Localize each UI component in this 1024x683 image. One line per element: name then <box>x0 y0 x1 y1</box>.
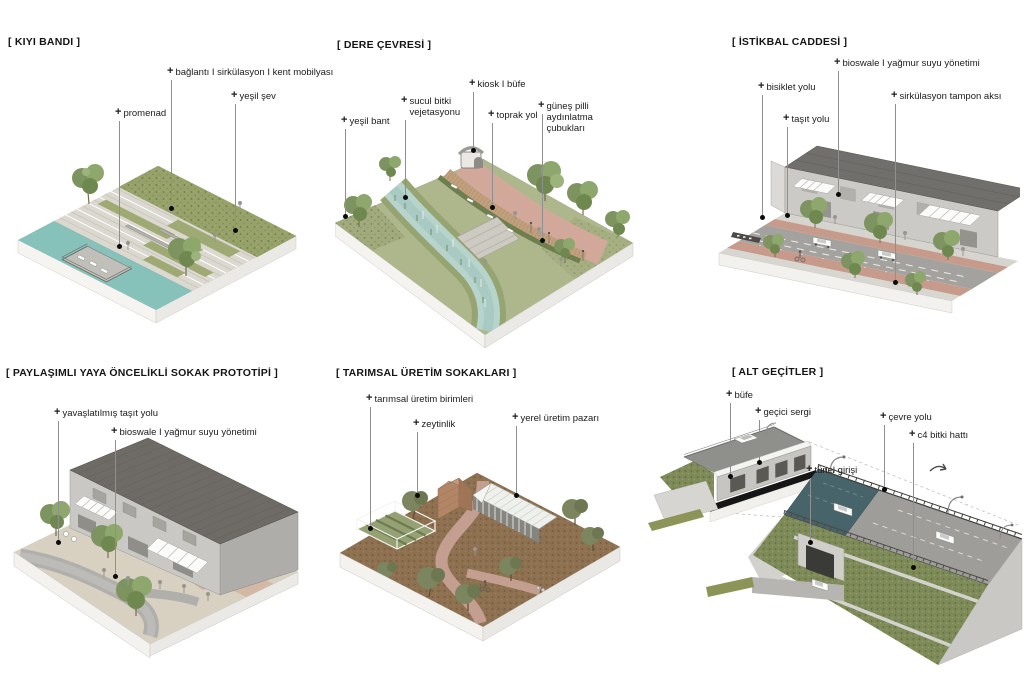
leader-line <box>171 80 172 209</box>
leader-line <box>884 425 885 490</box>
annotation-label: + promenad <box>115 108 166 119</box>
panel-title-kiyi-bandi: [ KIYI BANDI ] <box>8 36 80 48</box>
annotation-text: yerel üretim pazarı <box>520 413 599 424</box>
annotation-label: + bioswale I yağmur suyu yönetimi <box>834 58 980 69</box>
plus-marker: + <box>512 412 518 423</box>
annotation-dot <box>836 192 841 197</box>
annotation-dot <box>757 460 762 465</box>
plus-marker: + <box>783 113 789 124</box>
annotation-text: geçici sergi <box>763 407 811 418</box>
annotation-label: + zeytinlik <box>413 419 455 430</box>
annotation-dot <box>785 213 790 218</box>
annotation-dot <box>56 540 61 545</box>
annotation-dot <box>882 487 887 492</box>
annotation-label: + yeşil şev <box>231 91 276 102</box>
annotation-dot <box>113 574 118 579</box>
illustration-tarimsal-uretim <box>335 445 645 670</box>
leader-line <box>762 95 763 218</box>
annotation-text: bağlantı I sirkülasyon I kent mobilyası <box>175 67 333 78</box>
annotation-text: tarımsal üretim birimleri <box>374 394 473 405</box>
plus-marker: + <box>891 90 897 101</box>
annotation-text: toprak yol <box>496 110 537 121</box>
annotation-dot <box>808 540 813 545</box>
leader-line <box>516 426 517 496</box>
annotation-label: + kiosk I büfe <box>469 79 526 90</box>
leader-line <box>730 403 731 477</box>
illustration-paylasimli-sokak <box>8 430 318 675</box>
annotation-dot <box>403 195 408 200</box>
panel-title-paylasimli-sokak: [ PAYLAŞIMLI YAYA ÖNCELİKLİ SOKAK PROTOT… <box>6 367 278 379</box>
leader-line <box>787 127 788 216</box>
annotation-text: sucul bitki vejetasyonu <box>409 96 460 118</box>
plus-marker: + <box>909 429 915 440</box>
plus-marker: + <box>111 426 117 437</box>
annotation-dot <box>169 206 174 211</box>
annotation-label: + yeşil bant <box>341 116 390 127</box>
annotation-label: + bağlantı I sirkülasyon I kent mobilyas… <box>167 67 333 78</box>
leader-line <box>759 420 760 463</box>
annotation-label: + sirkülasyon tampon aksı <box>891 91 1001 102</box>
annotation-text: tünel girişi <box>814 465 857 476</box>
leader-line <box>405 120 406 198</box>
plus-marker: + <box>469 78 475 89</box>
plus-marker: + <box>880 411 886 422</box>
annotation-label: + yavaşlatılmış taşıt yolu <box>54 408 158 419</box>
leader-line <box>370 407 371 529</box>
illustration-kiyi-bandi <box>8 148 308 348</box>
annotation-text: bisiklet yolu <box>766 82 815 93</box>
plus-marker: + <box>488 109 494 120</box>
plus-marker: + <box>755 406 761 417</box>
annotation-label: + c4 bitki hattı <box>909 430 968 441</box>
plus-marker: + <box>366 393 372 404</box>
annotation-label: + sucul bitki vejetasyonu <box>401 96 457 118</box>
plus-marker: + <box>231 90 237 101</box>
annotation-text: c4 bitki hattı <box>917 430 968 441</box>
annotation-text: bioswale I yağmur suyu yönetimi <box>119 427 256 438</box>
annotation-text: yeşil şev <box>239 91 275 102</box>
annotation-text: promenad <box>123 108 166 119</box>
leader-line <box>235 104 236 231</box>
illustration-dere-cevresi <box>335 145 645 355</box>
plus-marker: + <box>726 389 732 400</box>
plus-marker: + <box>54 407 60 418</box>
leader-line <box>119 121 120 247</box>
leader-line <box>58 421 59 543</box>
annotation-label: + tünel girişi <box>806 465 857 476</box>
annotation-dot <box>471 148 476 153</box>
leader-line <box>417 432 418 496</box>
annotation-label: + yerel üretim pazarı <box>512 413 599 424</box>
plus-marker: + <box>758 81 764 92</box>
leader-line <box>492 123 493 208</box>
annotation-label: + geçici sergi <box>755 407 811 418</box>
plus-marker: + <box>538 100 544 111</box>
annotation-label: + bioswale I yağmur suyu yönetimi <box>111 427 257 438</box>
panel-title-alt-gecitler: [ ALT GEÇİTLER ] <box>732 366 823 378</box>
annotation-label: + güneş pilli aydınlatma çubukları <box>538 101 598 135</box>
annotation-dot <box>368 526 373 531</box>
annotation-dot <box>233 228 238 233</box>
annotation-text: sirkülasyon tampon aksı <box>899 91 1001 102</box>
leader-line <box>838 71 839 195</box>
panel-title-istikbal-caddesi: [ İSTİKBAL CADDESİ ] <box>732 36 847 48</box>
annotation-label: + çevre yolu <box>880 412 932 423</box>
annotation-text: yeşil bant <box>349 116 389 127</box>
annotation-text: güneş pilli aydınlatma çubukları <box>546 101 598 135</box>
diagram-canvas: [ KIYI BANDI ] <box>0 0 1024 683</box>
annotation-dot <box>760 215 765 220</box>
annotation-label: + toprak yol <box>488 110 538 121</box>
leader-line <box>115 440 116 577</box>
annotation-label: + taşıt yolu <box>783 114 829 125</box>
annotation-dot <box>911 565 916 570</box>
annotation-text: bioswale I yağmur suyu yönetimi <box>842 58 979 69</box>
annotation-dot <box>540 238 545 243</box>
plus-marker: + <box>806 464 812 475</box>
plus-marker: + <box>341 115 347 126</box>
leader-line <box>913 443 914 568</box>
annotation-label: + büfe <box>726 390 753 401</box>
annotation-dot <box>490 205 495 210</box>
annotation-label: + bisiklet yolu <box>758 82 816 93</box>
annotation-dot <box>117 244 122 249</box>
plus-marker: + <box>167 66 173 77</box>
annotation-dot <box>514 493 519 498</box>
plus-marker: + <box>115 107 121 118</box>
illustration-alt-gecitler <box>648 415 1024 670</box>
leader-line <box>473 92 474 151</box>
annotation-text: çevre yolu <box>888 412 931 423</box>
annotation-text: zeytinlik <box>421 419 455 430</box>
annotation-dot <box>343 214 348 219</box>
leader-line <box>345 129 346 217</box>
annotation-dot <box>893 280 898 285</box>
panel-title-dere-cevresi: [ DERE ÇEVRESİ ] <box>337 39 431 51</box>
annotation-text: yavaşlatılmış taşıt yolu <box>62 408 158 419</box>
annotation-text: taşıt yolu <box>791 114 829 125</box>
panel-title-tarimsal-uretim: [ TARIMSAL ÜRETİM SOKAKLARI ] <box>336 367 516 379</box>
plus-marker: + <box>413 418 419 429</box>
annotation-dot <box>728 474 733 479</box>
annotation-text: büfe <box>734 390 753 401</box>
annotation-label: + tarımsal üretim birimleri <box>366 394 473 405</box>
annotation-dot <box>415 493 420 498</box>
leader-line <box>895 104 896 283</box>
leader-line <box>810 478 811 543</box>
illustration-istikbal-caddesi <box>705 105 1020 340</box>
plus-marker: + <box>834 57 840 68</box>
plus-marker: + <box>401 95 407 106</box>
annotation-text: kiosk I büfe <box>477 79 525 90</box>
